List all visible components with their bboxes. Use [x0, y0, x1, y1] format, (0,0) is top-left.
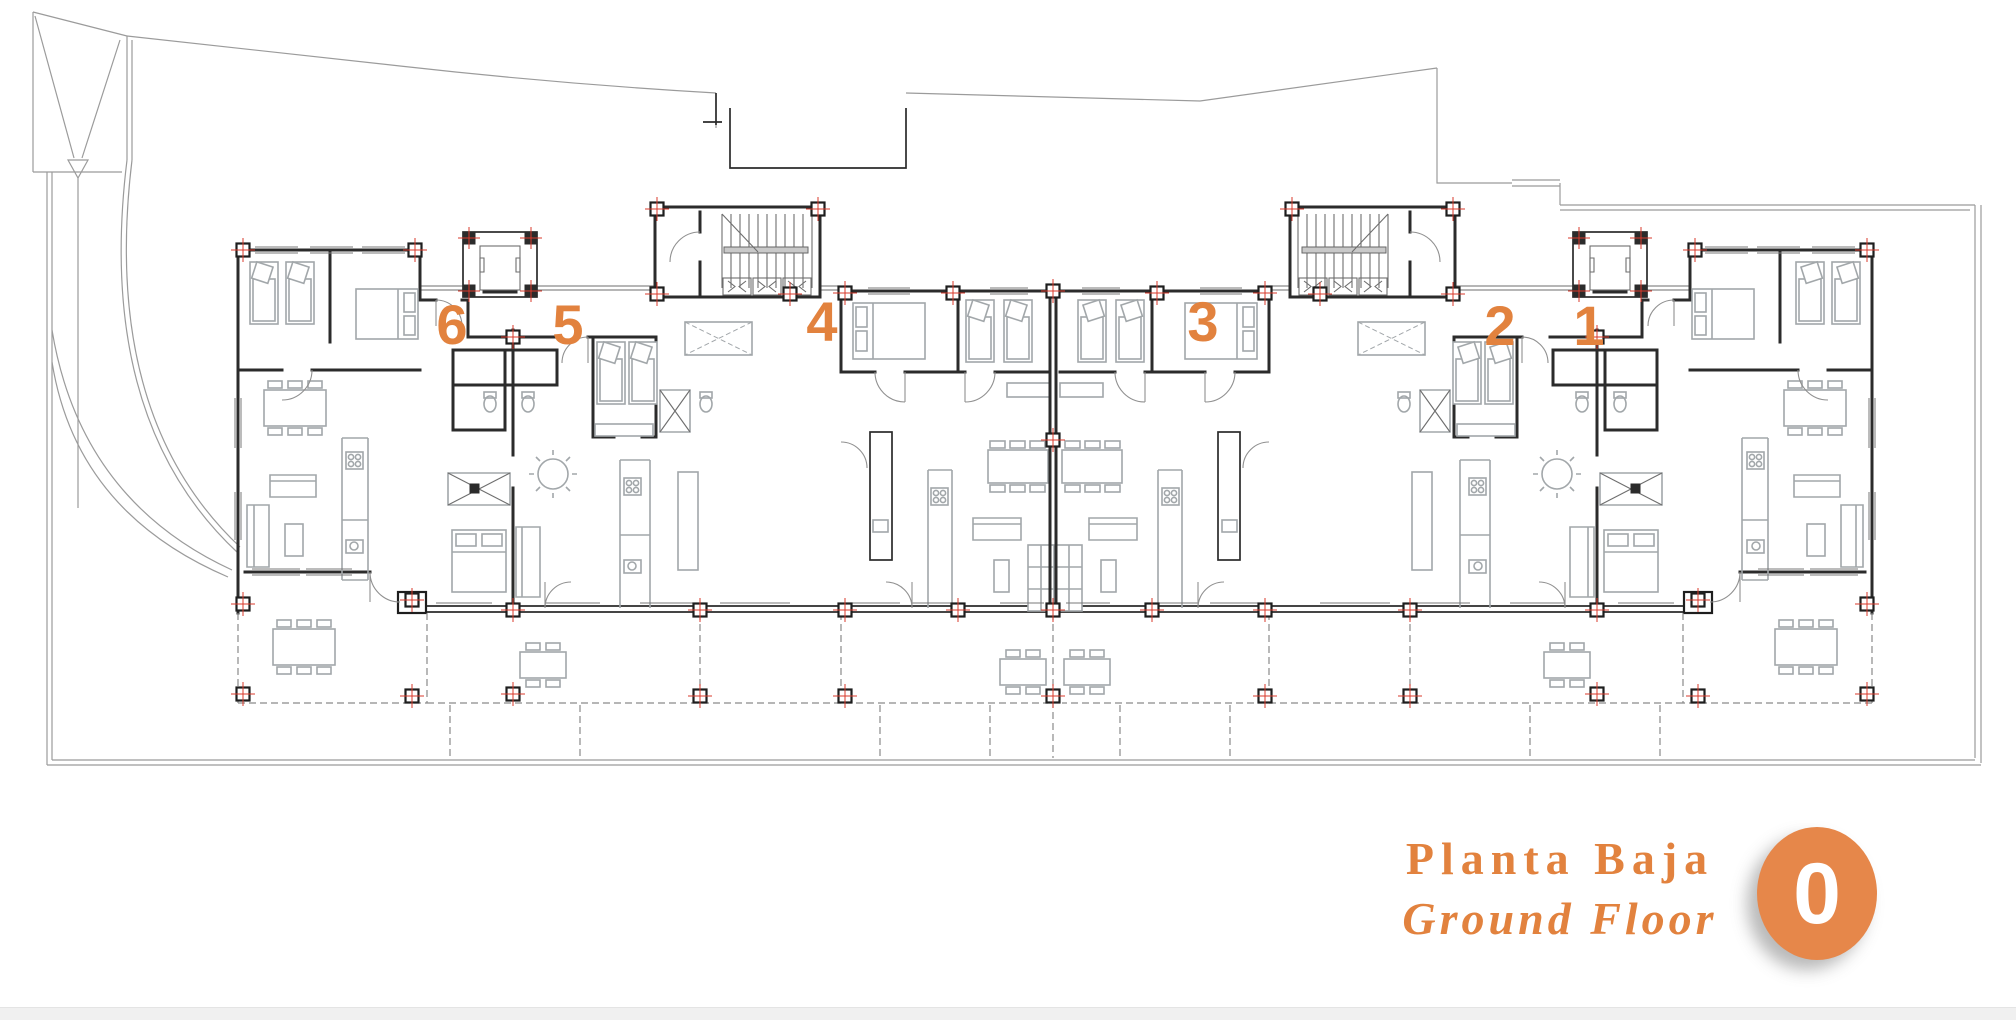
round-table-icon	[529, 450, 577, 498]
floor-plan-page: 123456 Planta Baja Ground Floor 0	[0, 0, 2016, 1020]
floor-badge: 0	[1757, 827, 1877, 960]
apartment-number-1: 1	[1573, 298, 1604, 354]
page-bottom-band	[0, 1007, 2016, 1020]
entrance-notch	[703, 93, 906, 168]
floor-badge-number: 0	[1793, 851, 1841, 937]
terrace-table	[520, 643, 566, 687]
elevator-shaft	[458, 227, 542, 302]
staircase	[722, 214, 812, 288]
curved-driveway	[52, 160, 240, 577]
terrace-table	[1000, 650, 1046, 694]
apartment-5-furniture	[516, 342, 698, 608]
apartment-6-furniture	[247, 262, 534, 592]
party-wall	[1041, 279, 1065, 758]
apartment-number-3: 3	[1187, 294, 1218, 350]
slope-arrow-icon	[35, 16, 120, 508]
building-left-half	[231, 197, 1054, 758]
floor-title-english: Ground Floor	[1340, 892, 1780, 945]
apartment-number-2: 2	[1484, 298, 1515, 354]
apartment-number-5: 5	[552, 297, 583, 353]
building-right-half	[1056, 197, 1879, 758]
floor-title-spanish: Planta Baja	[1340, 832, 1780, 885]
apartment-4-furniture	[660, 300, 1054, 611]
terrace-table	[273, 620, 335, 674]
apartment-number-4: 4	[806, 294, 837, 350]
apartment-number-6: 6	[436, 297, 467, 353]
terrace-boundary	[238, 613, 1048, 758]
